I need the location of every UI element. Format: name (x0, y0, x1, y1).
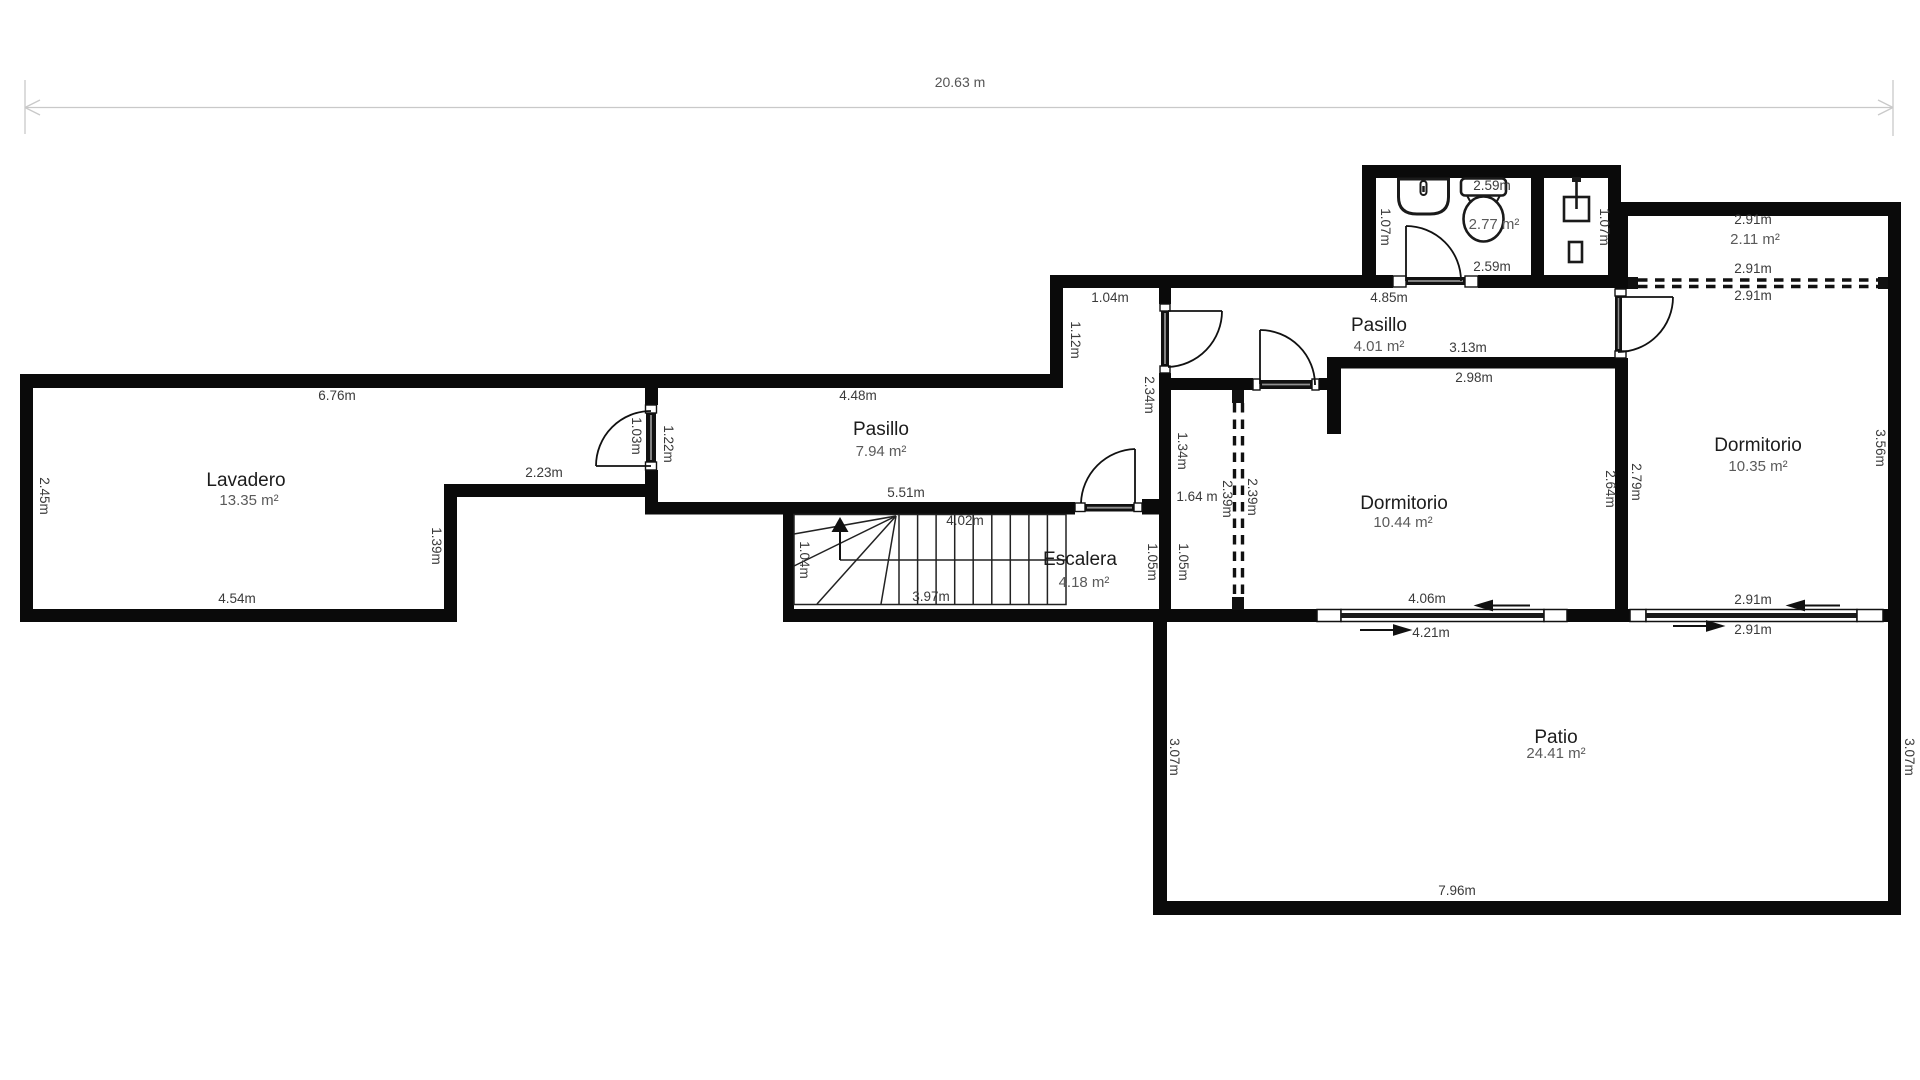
svg-text:1.05m: 1.05m (1176, 543, 1191, 581)
svg-text:3.97m: 3.97m (912, 589, 950, 604)
svg-text:Dormitorio: Dormitorio (1360, 493, 1448, 514)
svg-text:1.12m: 1.12m (1068, 321, 1083, 359)
svg-text:2.39m: 2.39m (1245, 478, 1260, 516)
svg-text:24.41 m²: 24.41 m² (1526, 745, 1585, 762)
svg-text:1.39m: 1.39m (429, 527, 444, 565)
svg-text:4.02m: 4.02m (946, 513, 984, 528)
svg-text:3.07m: 3.07m (1167, 738, 1182, 776)
svg-text:2.39m: 2.39m (1220, 480, 1235, 518)
svg-text:2.59m: 2.59m (1473, 259, 1511, 274)
svg-text:1.22m: 1.22m (661, 425, 676, 463)
svg-text:1.34m: 1.34m (1175, 432, 1190, 470)
svg-text:2.11 m²: 2.11 m² (1730, 231, 1780, 248)
svg-text:2.91m: 2.91m (1734, 212, 1772, 227)
svg-text:3.56m: 3.56m (1873, 429, 1888, 467)
svg-text:1.07m: 1.07m (1378, 208, 1393, 246)
svg-text:2.91m: 2.91m (1734, 592, 1772, 607)
svg-text:2.98m: 2.98m (1455, 370, 1493, 385)
svg-text:4.85m: 4.85m (1370, 290, 1408, 305)
svg-text:2.91m: 2.91m (1734, 622, 1772, 637)
svg-text:4.21m: 4.21m (1412, 625, 1450, 640)
svg-text:2.59m: 2.59m (1473, 178, 1511, 193)
svg-text:2.45m: 2.45m (37, 477, 52, 515)
svg-text:1.07m: 1.07m (1597, 208, 1612, 246)
svg-text:2.91m: 2.91m (1734, 288, 1772, 303)
svg-text:1.05m: 1.05m (1145, 543, 1160, 581)
svg-text:7.96m: 7.96m (1438, 883, 1476, 898)
svg-text:5.51m: 5.51m (887, 485, 925, 500)
svg-text:1.03m: 1.03m (629, 417, 644, 455)
svg-text:Escalera: Escalera (1043, 549, 1117, 570)
svg-text:6.76m: 6.76m (318, 388, 356, 403)
svg-text:2.79m: 2.79m (1629, 463, 1644, 501)
svg-text:7.94 m²: 7.94 m² (856, 443, 907, 460)
svg-text:4.18 m²: 4.18 m² (1059, 574, 1110, 591)
svg-text:3.07m: 3.07m (1902, 738, 1917, 776)
svg-text:2.23m: 2.23m (525, 465, 563, 480)
svg-text:1.04m: 1.04m (797, 541, 812, 579)
svg-text:2.64m: 2.64m (1603, 470, 1618, 508)
svg-text:4.54m: 4.54m (218, 591, 256, 606)
svg-text:3.13m: 3.13m (1449, 340, 1487, 355)
svg-text:20.63 m: 20.63 m (935, 74, 986, 90)
svg-text:2.34m: 2.34m (1142, 376, 1157, 414)
svg-text:4.06m: 4.06m (1408, 591, 1446, 606)
svg-text:Pasillo: Pasillo (1351, 315, 1407, 336)
svg-text:2.77 m²: 2.77 m² (1469, 216, 1520, 233)
svg-text:4.01 m²: 4.01 m² (1354, 338, 1405, 355)
svg-text:1.04m: 1.04m (1091, 290, 1129, 305)
svg-text:10.35 m²: 10.35 m² (1728, 458, 1787, 475)
svg-text:2.91m: 2.91m (1734, 261, 1772, 276)
svg-text:Lavadero: Lavadero (206, 470, 285, 491)
svg-text:Pasillo: Pasillo (853, 419, 909, 440)
svg-text:Dormitorio: Dormitorio (1714, 435, 1802, 456)
svg-text:13.35 m²: 13.35 m² (219, 492, 278, 509)
svg-text:1.64 m: 1.64 m (1176, 489, 1217, 504)
svg-text:4.48m: 4.48m (839, 388, 877, 403)
svg-text:10.44 m²: 10.44 m² (1373, 514, 1432, 531)
